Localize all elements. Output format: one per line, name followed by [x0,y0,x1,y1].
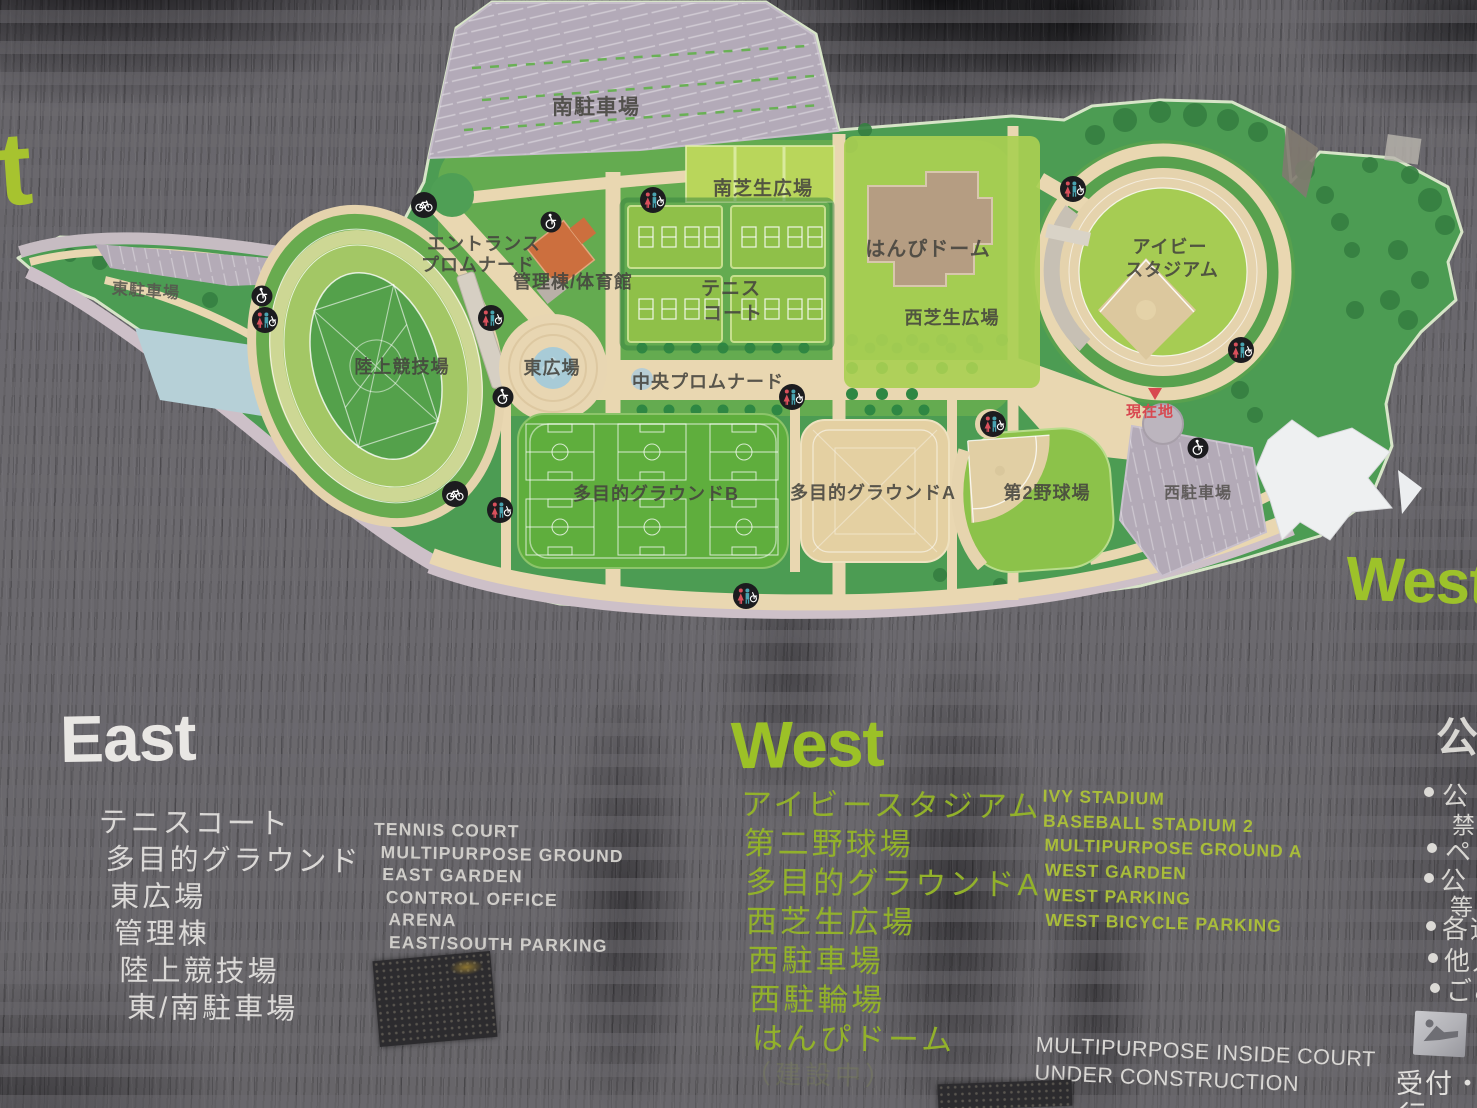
map-label-multipurpose-b: 多目的グラウンドB [573,480,739,506]
reception-pictogram [1413,1011,1467,1058]
map-label-south-lawn-plaza: 南芝生広場 [713,174,813,201]
map-label-ivy-stadium-2: スタジアム [1125,256,1219,282]
map-label-admin-gym: 管理棟/体育館 [513,268,633,294]
list-item: テニスコート [99,805,362,844]
map-label-current-location: 現在地 [1126,401,1174,422]
rules-bullet-6: ごみ [1446,971,1477,1008]
bottom-braille-plaque [938,1080,1073,1108]
toilet-icon [733,583,759,609]
park-sign-photo: 南駐車場 南芝生広場 エントランス プロムナード 管理棟/体育館 テニス コート… [0,0,1477,1108]
toilet-icon [640,187,666,213]
reception-text-line2: 行 [1399,1094,1428,1108]
east-legend-title: East [59,699,196,777]
list-item: 東広場 [110,879,361,918]
bicycle-icon [411,192,437,218]
toilet-icon [478,305,504,331]
map-label-east-plaza: 東広場 [524,354,581,380]
east-legend-english-list: TENNIS COURT MULTIPURPOSE GROUND EAST GA… [372,818,625,957]
map-label-central-promenade: 中央プロムナード [632,368,784,394]
bullet-icon [1428,953,1438,963]
rules-heading: 公 [1436,704,1477,765]
map-label-multipurpose-a: 多目的グラウンドA [790,479,956,505]
toilet-icon [252,307,278,333]
wheelchair-icon [252,286,273,307]
peeled-paint-patch [1256,420,1422,540]
west-legend-title: West [730,705,884,784]
wheelchair-icon [1188,438,1209,459]
bullet-icon [1430,983,1440,993]
list-item: ARENA [388,908,623,935]
toilet-icon [487,497,513,523]
map-label-athletics-field: 陸上競技場 [355,353,450,379]
list-item: 多目的グラウンドA [745,863,1041,905]
list-item: 西駐輪場 [749,980,1040,1022]
east-braille-plaque [372,951,497,1047]
faint-construction-text: （建設中） [745,1054,896,1094]
list-item: 西駐車場 [747,941,1040,983]
map-label-tennis-1: テニス [701,274,761,301]
bullet-icon [1427,843,1437,853]
list-item: 第二野球場 [744,824,1042,866]
bicycle-icon [442,481,468,507]
map-label-tennis-2: コート [703,299,763,326]
wheelchair-icon [493,387,514,408]
east-legend-japanese-list: テニスコート 多目的グラウンド 東広場 管理棟 陸上競技場 東/南駐車場 [97,805,362,1029]
toilet-icon [1228,337,1254,363]
list-item: 多目的グラウンド [105,842,361,881]
toilet-icon [1060,176,1086,202]
map-label-hanpi-dome: はんぴドーム [865,233,990,262]
map-label-east-parking: 東駐車場 [111,275,181,304]
toilet-icon [980,411,1006,437]
big-west-heading-right: West [1345,544,1477,620]
list-item: 東/南駐車場 [127,990,360,1029]
list-item: 陸上競技場 [119,953,360,992]
bullet-icon [1426,921,1436,931]
wheelchair-icon [541,212,562,233]
list-item: 管理棟 [114,916,361,955]
map-label-west-lawn-plaza: 西芝生広場 [905,304,1000,330]
braille-plaque-wear [449,958,484,977]
list-item: 西芝生広場 [746,902,1041,944]
west-legend-english-list: IVY STADIUM BASEBALL STADIUM 2 MULTIPURP… [1039,784,1304,939]
west-legend-japanese-list: アイビースタジアム 第二野球場 多目的グラウンドA 西芝生広場 西駐車場 西駐輪… [739,785,1042,1061]
map-label-west-parking: 西駐車場 [1164,479,1232,503]
map-label-baseball-field-2: 第2野球場 [1003,479,1090,505]
list-item: EAST/SOUTH PARKING [389,931,623,958]
list-item: アイビースタジアム [741,785,1042,827]
map-label-south-parking: 南駐車場 [552,91,640,121]
bullet-icon [1424,873,1434,883]
bullet-icon [1424,787,1434,797]
